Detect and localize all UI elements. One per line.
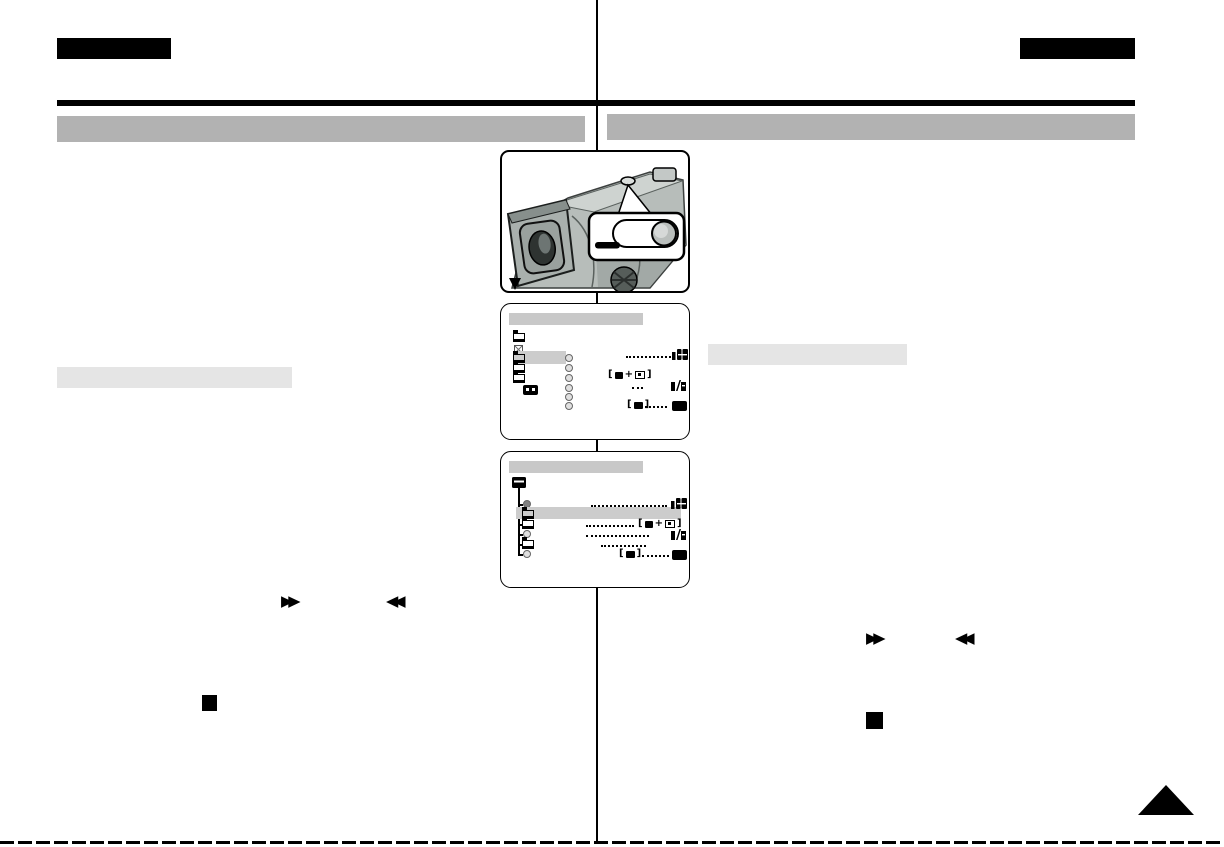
rewind-icon: ◀◀ [386,593,401,608]
camcorder-illustration [502,152,688,291]
stop-icon [202,695,217,711]
stop-icon [866,712,883,729]
memory-card-icon [523,385,538,395]
open-folder-icon [512,477,526,488]
header-rule [57,100,1135,106]
dotted-leader [645,406,667,408]
dotted-leader [626,356,671,358]
camcorder-badge-icon: [] [619,549,641,559]
page-corner-marker-icon [1138,785,1194,815]
audio-bit-badge-icon [671,529,686,540]
osd-menu-screen-1: [+] [] [500,303,690,440]
dotted-leader [632,387,643,389]
folder-icon [513,374,525,383]
right-subsection-bar [708,344,907,365]
tape-to-memory-badge-icon: [+] [638,519,682,529]
rewind-icon: ◀◀ [955,630,970,645]
fast-forward-icon: ▶▶ [866,630,881,645]
radio-icon [565,364,573,372]
folder-icon [522,540,534,549]
left-subsection-bar [57,367,292,388]
dotted-leader [642,555,669,557]
radio-icon [565,384,573,392]
dotted-leader [586,525,634,527]
osd2-title-bar [509,461,643,473]
tape-speed-badge-icon [672,349,688,360]
radio-icon [523,550,531,558]
osd1-title-bar [509,313,643,325]
top-switch [653,168,676,181]
audio-bit-badge-icon [671,380,686,391]
camcorder-badge-icon: [] [627,400,649,410]
camera-illustration-frame [500,150,690,293]
tape-speed-badge-icon [671,498,687,509]
tape-to-memory-badge-icon: [+] [608,370,652,380]
radio-icon [565,402,573,410]
left-page-tab [57,38,171,59]
dotted-leader [586,535,649,537]
dotted-leader [601,545,646,547]
solid-black-badge-icon [672,401,687,411]
folder-icon [513,333,525,342]
solid-black-badge-icon [672,550,687,560]
button-label-pill [595,242,620,249]
right-section-title-bar [607,114,1135,140]
folder-icon [522,520,534,529]
fast-forward-icon: ▶▶ [281,593,296,608]
radio-icon [565,354,573,362]
dotted-leader [591,505,667,507]
right-page-tab [1020,38,1135,59]
radio-icon [565,374,573,382]
osd-menu-screen-2: [+] [] [500,451,690,588]
page-bottom-edge [0,841,1224,844]
left-section-title-bar [57,116,585,142]
manual-page: [+] [] [0,0,1224,847]
radio-icon [565,393,573,401]
